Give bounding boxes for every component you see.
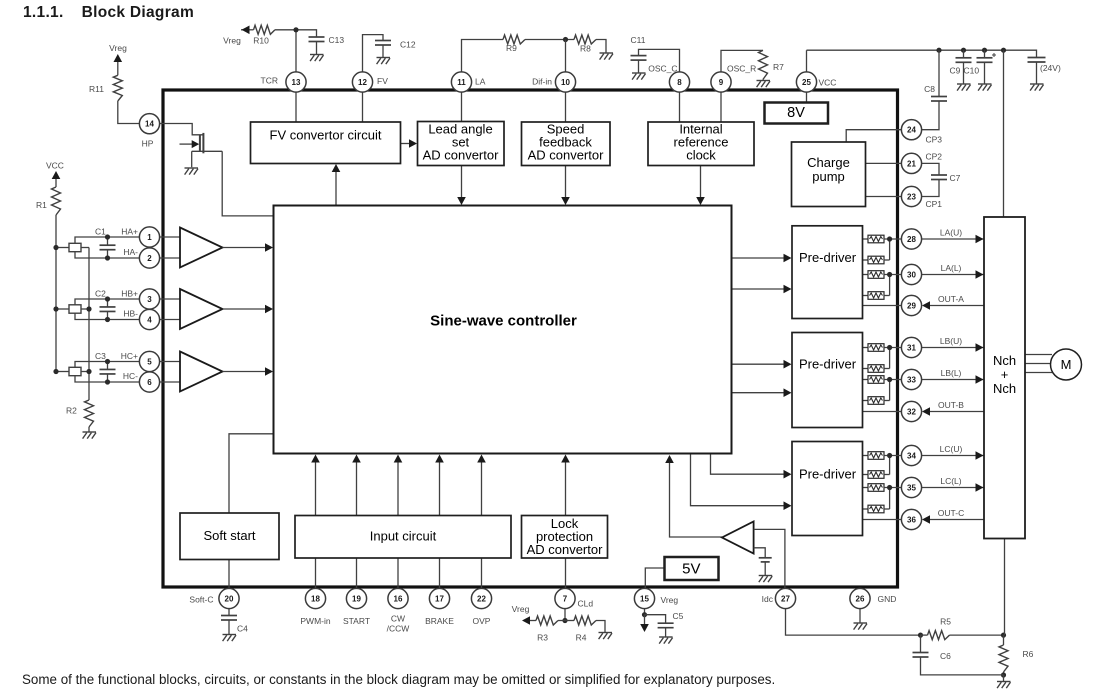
svg-text:R9: R9 bbox=[506, 43, 517, 53]
svg-text:C3: C3 bbox=[95, 351, 106, 361]
svg-text:8V: 8V bbox=[787, 105, 805, 121]
svg-text:LB(U): LB(U) bbox=[940, 336, 962, 346]
svg-text:Idc: Idc bbox=[762, 594, 774, 604]
svg-text:PWM-in: PWM-in bbox=[300, 616, 330, 626]
svg-text:HC+: HC+ bbox=[121, 351, 138, 361]
svg-text:15: 15 bbox=[640, 594, 649, 603]
svg-text:12: 12 bbox=[358, 78, 367, 87]
svg-text:(24V): (24V) bbox=[1040, 63, 1061, 73]
svg-text:2: 2 bbox=[147, 254, 152, 263]
svg-text:8: 8 bbox=[677, 78, 682, 87]
svg-text:C7: C7 bbox=[950, 173, 961, 183]
svg-text:34: 34 bbox=[907, 451, 916, 460]
svg-text:Input circuit: Input circuit bbox=[370, 529, 437, 544]
svg-text:FV: FV bbox=[377, 76, 388, 86]
svg-text:35: 35 bbox=[907, 483, 916, 492]
svg-text:13: 13 bbox=[292, 78, 301, 87]
svg-text:C4: C4 bbox=[237, 624, 248, 634]
svg-text:CP1: CP1 bbox=[926, 199, 943, 209]
svg-text:M: M bbox=[1061, 357, 1072, 372]
svg-text:AD convertor: AD convertor bbox=[423, 148, 500, 163]
svg-text:33: 33 bbox=[907, 375, 916, 384]
svg-text:29: 29 bbox=[907, 301, 916, 310]
svg-text:/CCW: /CCW bbox=[387, 624, 410, 634]
svg-text:R8: R8 bbox=[580, 44, 591, 54]
svg-text:C9: C9 bbox=[950, 66, 961, 76]
svg-text:18: 18 bbox=[311, 594, 320, 603]
svg-text:START: START bbox=[343, 616, 370, 626]
svg-text:R3: R3 bbox=[537, 633, 548, 643]
svg-text:31: 31 bbox=[907, 343, 916, 352]
svg-text:9: 9 bbox=[719, 78, 724, 87]
svg-text:Vreg: Vreg bbox=[109, 43, 127, 53]
svg-text:HC-: HC- bbox=[123, 371, 138, 381]
svg-text:5: 5 bbox=[147, 357, 152, 366]
svg-text:AD convertor: AD convertor bbox=[527, 542, 604, 557]
svg-text:Soft start: Soft start bbox=[203, 528, 255, 543]
svg-text:16: 16 bbox=[394, 594, 403, 603]
svg-text:20: 20 bbox=[225, 594, 234, 603]
svg-text:C8: C8 bbox=[924, 84, 935, 94]
svg-text:Sine-wave controller: Sine-wave controller bbox=[430, 313, 577, 330]
svg-text:Vreg: Vreg bbox=[223, 36, 241, 46]
svg-text:C1: C1 bbox=[95, 227, 106, 237]
svg-text:HA-: HA- bbox=[123, 247, 138, 257]
svg-text:R4: R4 bbox=[576, 633, 587, 643]
svg-text:Pre-driver: Pre-driver bbox=[799, 467, 857, 482]
svg-text:LC(U): LC(U) bbox=[940, 444, 963, 454]
svg-text:11: 11 bbox=[457, 78, 466, 87]
svg-text:19: 19 bbox=[352, 594, 361, 603]
svg-text:24: 24 bbox=[907, 126, 916, 135]
svg-text:32: 32 bbox=[907, 407, 916, 416]
svg-text:7: 7 bbox=[563, 594, 568, 603]
svg-text:Pre-driver: Pre-driver bbox=[799, 357, 857, 372]
svg-text:OUT-A: OUT-A bbox=[938, 294, 964, 304]
svg-text:clock: clock bbox=[686, 148, 716, 163]
svg-text:OSC_C: OSC_C bbox=[648, 64, 677, 74]
svg-text:C5: C5 bbox=[673, 611, 684, 621]
svg-text:BRAKE: BRAKE bbox=[425, 616, 454, 626]
svg-text:3: 3 bbox=[147, 295, 152, 304]
svg-text:Nch: Nch bbox=[993, 381, 1016, 396]
svg-text:17: 17 bbox=[435, 594, 444, 603]
svg-text:+: + bbox=[1001, 367, 1009, 382]
svg-text:LA(L): LA(L) bbox=[941, 263, 962, 273]
svg-text:TCR: TCR bbox=[261, 76, 278, 86]
svg-text:FV convertor circuit: FV convertor circuit bbox=[270, 128, 382, 143]
svg-text:pump: pump bbox=[812, 169, 845, 184]
svg-text:Soft-C: Soft-C bbox=[189, 595, 213, 605]
svg-text:C11: C11 bbox=[631, 35, 646, 45]
svg-text:Charge: Charge bbox=[807, 155, 850, 170]
svg-text:R6: R6 bbox=[1023, 649, 1034, 659]
svg-text:22: 22 bbox=[477, 594, 486, 603]
svg-text:LA: LA bbox=[475, 77, 486, 87]
svg-text:OUT-B: OUT-B bbox=[938, 400, 964, 410]
svg-text:OSC_R: OSC_R bbox=[727, 64, 756, 74]
svg-text:VCC: VCC bbox=[819, 78, 837, 88]
svg-text:Dif-in: Dif-in bbox=[532, 77, 552, 87]
svg-text:25: 25 bbox=[802, 78, 811, 87]
svg-text:C10: C10 bbox=[964, 66, 980, 76]
svg-text:Vreg: Vreg bbox=[661, 595, 679, 605]
svg-text:28: 28 bbox=[907, 235, 916, 244]
svg-text:C6: C6 bbox=[940, 651, 951, 661]
svg-text:AD convertor: AD convertor bbox=[528, 148, 605, 163]
svg-text:HP: HP bbox=[142, 139, 154, 149]
svg-text:CP2: CP2 bbox=[926, 152, 943, 162]
svg-text:R1: R1 bbox=[36, 200, 47, 210]
svg-text:HB+: HB+ bbox=[121, 289, 138, 299]
svg-text:LA(U): LA(U) bbox=[940, 228, 962, 238]
svg-text:HB-: HB- bbox=[123, 309, 138, 319]
svg-text:LB(L): LB(L) bbox=[941, 368, 962, 378]
svg-text:5V: 5V bbox=[682, 561, 700, 578]
svg-text:14: 14 bbox=[145, 120, 154, 129]
svg-text:CLd: CLd bbox=[578, 599, 594, 609]
svg-text:C13: C13 bbox=[329, 35, 345, 45]
svg-text:OVP: OVP bbox=[473, 616, 491, 626]
svg-text:GND: GND bbox=[878, 594, 897, 604]
svg-text:Vreg: Vreg bbox=[512, 604, 530, 614]
svg-text:OUT-C: OUT-C bbox=[938, 508, 964, 518]
svg-text:R2: R2 bbox=[66, 406, 77, 416]
svg-text:1: 1 bbox=[147, 233, 152, 242]
svg-text:30: 30 bbox=[907, 270, 916, 279]
svg-text:CW: CW bbox=[391, 614, 405, 624]
svg-text:C12: C12 bbox=[400, 40, 416, 50]
svg-text:36: 36 bbox=[907, 515, 916, 524]
svg-text:4: 4 bbox=[147, 315, 152, 324]
svg-text:Pre-driver: Pre-driver bbox=[799, 250, 857, 265]
svg-text:23: 23 bbox=[907, 192, 916, 201]
svg-text:R7: R7 bbox=[773, 62, 784, 72]
svg-text:C2: C2 bbox=[95, 289, 106, 299]
svg-text:CP3: CP3 bbox=[926, 135, 943, 145]
svg-text:26: 26 bbox=[856, 594, 865, 603]
svg-text:6: 6 bbox=[147, 378, 152, 387]
svg-text:Nch: Nch bbox=[993, 353, 1016, 368]
svg-text:LC(L): LC(L) bbox=[940, 476, 961, 486]
svg-text:10: 10 bbox=[561, 78, 570, 87]
svg-text:21: 21 bbox=[907, 159, 916, 168]
svg-text:VCC: VCC bbox=[46, 161, 64, 171]
svg-text:R11: R11 bbox=[89, 84, 104, 94]
svg-text:R10: R10 bbox=[253, 36, 269, 46]
svg-text:HA+: HA+ bbox=[121, 227, 138, 237]
svg-text:27: 27 bbox=[781, 594, 790, 603]
svg-text:R5: R5 bbox=[940, 617, 951, 627]
